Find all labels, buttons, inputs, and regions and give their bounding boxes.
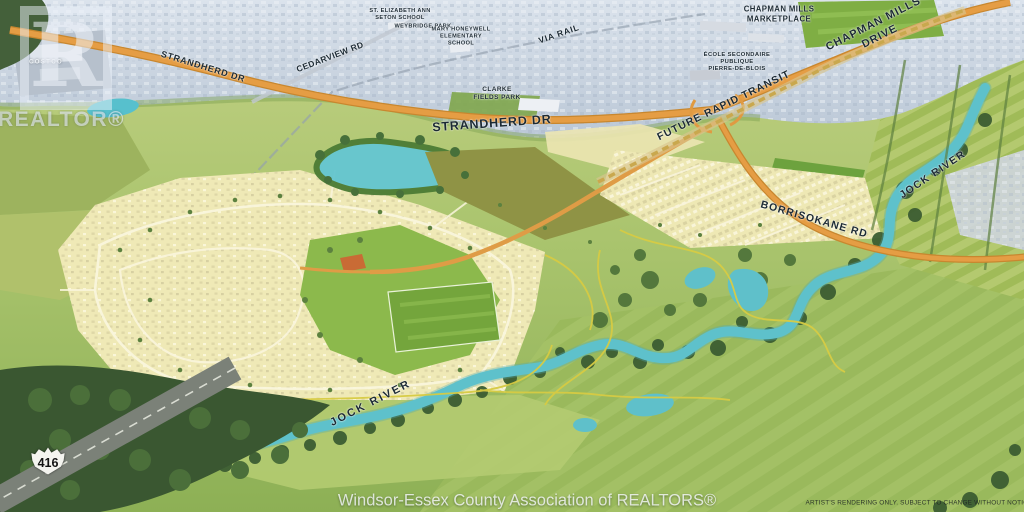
aerial-rendering: COSTCO STRANDHERD DR CEDARVIEW RD ST. EL… [0,0,1024,512]
aerial-map-art [0,0,1024,512]
